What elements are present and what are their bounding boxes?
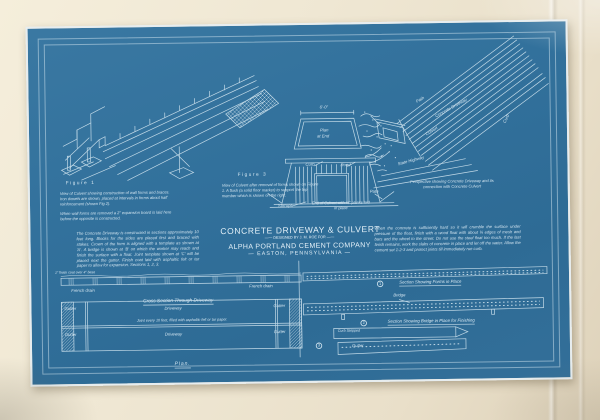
- section3-number-badge: 3: [316, 342, 322, 348]
- bridge-label: Bridge: [393, 294, 405, 298]
- designed-by-line: —— DESIGNED BY J. M. ROE FOR ——: [250, 235, 348, 240]
- french-drain-label-left: French drain: [71, 289, 95, 294]
- left-specification-note: The Concrete Driveway is constructed in …: [76, 230, 199, 269]
- forms-sections-drawing: [299, 258, 548, 357]
- figure3-label: Figure 3: [238, 172, 268, 177]
- plan-title: Plan.: [166, 352, 198, 370]
- driveway-label-bottom: Driveway: [165, 333, 182, 337]
- perspective-drawing: [358, 36, 550, 189]
- gutter-label-br: Gutter: [274, 330, 286, 334]
- figure1-caption: View of Culvert showing construction of …: [60, 191, 172, 208]
- gutter-label-tr: Gutter: [273, 304, 285, 308]
- driveway-label-top: Driveway: [164, 307, 181, 311]
- figure1-label: Figure 1: [66, 181, 96, 186]
- gutter-label-tl: Gutter: [64, 307, 76, 311]
- end-of-culvert-caption: End of Culvert with ¾" planks laid in pl…: [311, 201, 371, 212]
- fig1-forms-drawing: [60, 75, 279, 181]
- company-location: — EASTON, PENNSYLVANIA —: [230, 250, 369, 257]
- photo-of-blueprint: Figure 1 View of Culvert showing constru…: [0, 0, 600, 420]
- cross-section-title: Cross Section Through Driveway: [118, 289, 238, 309]
- drawing-title: CONCRETE DRIVEWAY & CULVERT: [220, 224, 378, 236]
- section1-number-badge: 1: [377, 281, 383, 287]
- figure1-caption-2: When wall forms are removed a 2" expansi…: [60, 211, 172, 223]
- curb-label: Curb: [305, 163, 314, 167]
- figure3-caption: View of Culvert after removal of forms s…: [222, 183, 323, 200]
- paper-crease: [578, 0, 586, 420]
- plan-title-text: Plan.: [174, 362, 190, 369]
- dimension-label: 6'-0": [320, 106, 328, 110]
- blueprint-sheet: Figure 1 View of Culvert showing constru…: [26, 19, 573, 387]
- french-drain-label-right: French drain: [249, 284, 273, 289]
- section2-caption: Section Showing Bridge in Place for Fini…: [388, 319, 475, 326]
- road-label: Road: [340, 163, 350, 167]
- perspective-caption: Perspective showing Concrete Driveway an…: [408, 179, 497, 191]
- cross-section-title-text: Cross Section Through Driveway: [143, 298, 213, 305]
- section1-caption: Section Showing Forms in Place: [400, 280, 462, 287]
- right-specification-note: When the concrete is sufficiently hard s…: [374, 225, 521, 254]
- stirrups-label: Stirrups: [278, 204, 293, 208]
- gutter-label-bl: Gutter: [65, 333, 77, 337]
- curb-stripped-label: Curb Stripped: [338, 329, 360, 333]
- title-block: CONCRETE DRIVEWAY & CULVERT —— DESIGNED …: [220, 224, 378, 258]
- path-label: Path: [370, 190, 379, 194]
- section2-number-badge: 2: [360, 320, 366, 326]
- finish-coat-note: 1" finish coat over 4" base: [55, 271, 96, 275]
- plan-at-end-label: Plan: [320, 129, 328, 133]
- gutter-wedge-label: Gutter: [352, 344, 364, 348]
- plan-at-end-label-2: at End: [317, 135, 329, 139]
